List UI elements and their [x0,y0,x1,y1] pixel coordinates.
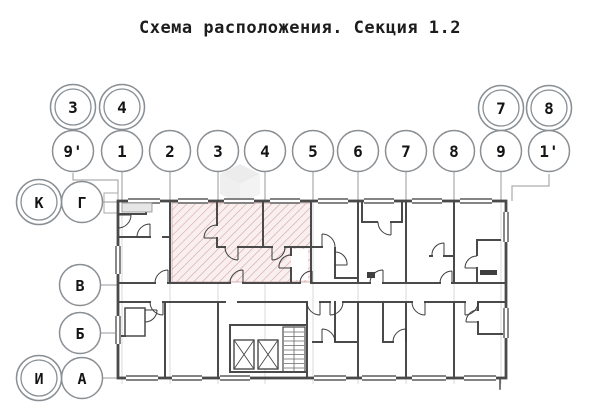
axis-circles-rows: Г В Б А К И [17,180,103,401]
axis-circle-secondary: 8 [527,86,572,131]
elevator-shaft [258,340,278,369]
axis-circle-row-secondary: К [17,180,62,225]
axis-circles-columns: 9' 1 2 3 4 5 6 7 8 9 1' [53,131,570,172]
axis-label: 2 [165,142,175,161]
axis-circle-column: 2 [150,131,191,172]
axis-circle-secondary: 3 [51,85,96,130]
floor-plan-page: Схема расположения. Секция 1.2 [0,0,600,409]
page-title: Схема расположения. Секция 1.2 [0,18,600,38]
axis-circle-column: 8 [434,131,475,172]
axis-circle-column: 5 [293,131,334,172]
entrance-porch [104,193,118,213]
axis-circle-column: 1 [102,131,143,172]
axis-label: Г [77,194,86,212]
axis-circle-column: 7 [386,131,427,172]
staircase [283,327,305,372]
axis-circle-column: 4 [245,131,286,172]
axis-circle-secondary: 4 [100,85,145,130]
axis-circle-column: 9' [53,131,94,172]
axis-circle-row: В [60,265,101,306]
axis-circles-top-secondary: 3 4 7 8 [51,85,572,131]
axis-circle-column: 6 [338,131,379,172]
highlight-bathroom-cutout [291,249,308,280]
axis-label: 3 [68,98,78,117]
axis-label: И [34,370,43,388]
axis-label: 4 [117,98,127,117]
axis-circle-column: 9 [481,131,522,172]
axis-label: 9 [496,142,506,161]
axis-label: 6 [353,142,363,161]
axis-label: 9' [63,142,82,161]
axis-label: 8 [449,142,459,161]
axis-label: 1' [539,142,558,161]
axis-circle-row-secondary: И [17,356,62,401]
axis-label: 7 [401,142,411,161]
axis-label: К [34,194,43,212]
axis-circle-secondary: 7 [479,86,524,131]
axis-label: А [77,370,86,388]
axis-label: Б [75,325,84,343]
axis-circle-row: Г [62,182,103,223]
axis-label: В [75,277,84,295]
axis-label: 4 [260,142,270,161]
axis-circle-row: А [62,358,103,399]
axis-label: 7 [496,99,506,118]
axis-label: 5 [308,142,318,161]
axis-label: 3 [213,142,223,161]
floor-plan-drawing: 3 4 7 8 9' 1 2 3 4 5 6 7 8 9 1' Г В Б А … [0,0,600,409]
axis-label: 8 [544,99,554,118]
axis-circle-column: 1' [529,131,570,172]
axis-label: 1 [117,142,127,161]
axis-circle-row: Б [60,313,101,354]
elevator-shaft [234,340,254,369]
axis-circle-column: 3 [198,131,239,172]
